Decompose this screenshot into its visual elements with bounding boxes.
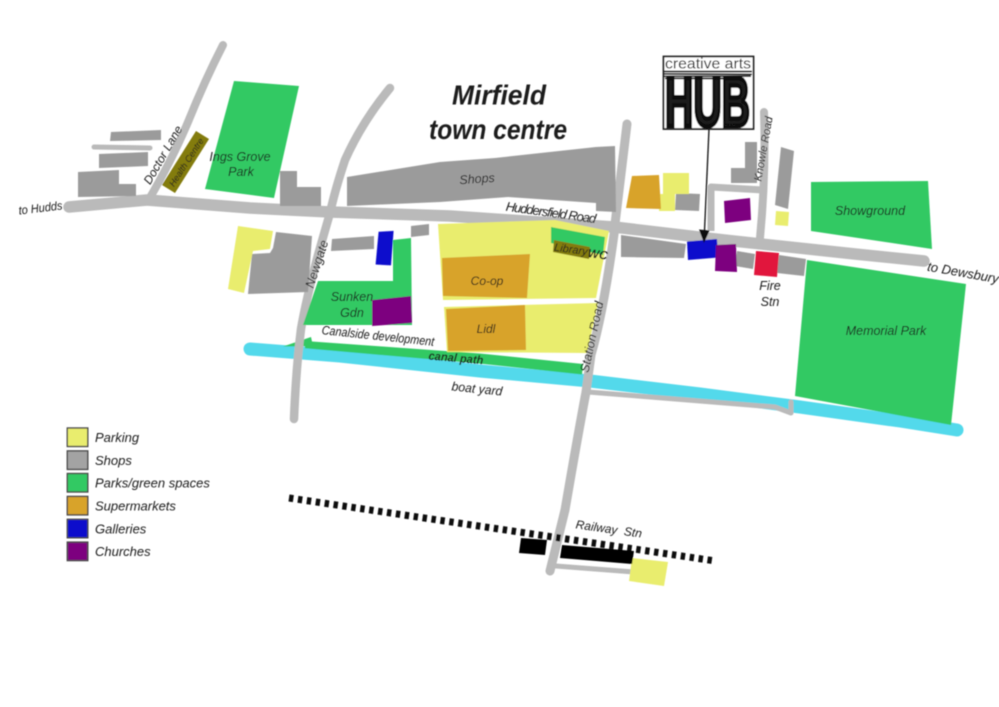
svg-text:Sunken: Sunken [331,290,373,304]
svg-text:Parking: Parking [95,430,140,445]
svg-text:Galleries: Galleries [95,521,147,536]
svg-text:WC: WC [587,246,609,263]
svg-text:Ings Grove: Ings Grove [209,150,270,164]
svg-text:Memorial Park: Memorial Park [846,324,927,338]
svg-text:Co-op: Co-op [471,274,504,288]
svg-text:Gdn: Gdn [340,306,364,320]
svg-text:Supermarkets: Supermarkets [95,498,176,513]
svg-text:cic: cic [723,118,737,129]
svg-text:Lidl: Lidl [477,322,496,336]
svg-text:Mirfield: Mirfield [452,80,547,111]
svg-text:Churches: Churches [95,544,151,559]
svg-text:HUB: HUB [665,63,750,141]
svg-text:Shops: Shops [95,453,132,468]
svg-text:Showground: Showground [835,204,906,218]
svg-text:Fire: Fire [759,279,781,293]
svg-text:town centre: town centre [429,114,567,145]
svg-text:Park: Park [228,165,254,179]
svg-text:Shops: Shops [459,171,495,187]
svg-text:Parks/green spaces: Parks/green spaces [95,476,210,491]
svg-text:Stn: Stn [761,295,780,309]
